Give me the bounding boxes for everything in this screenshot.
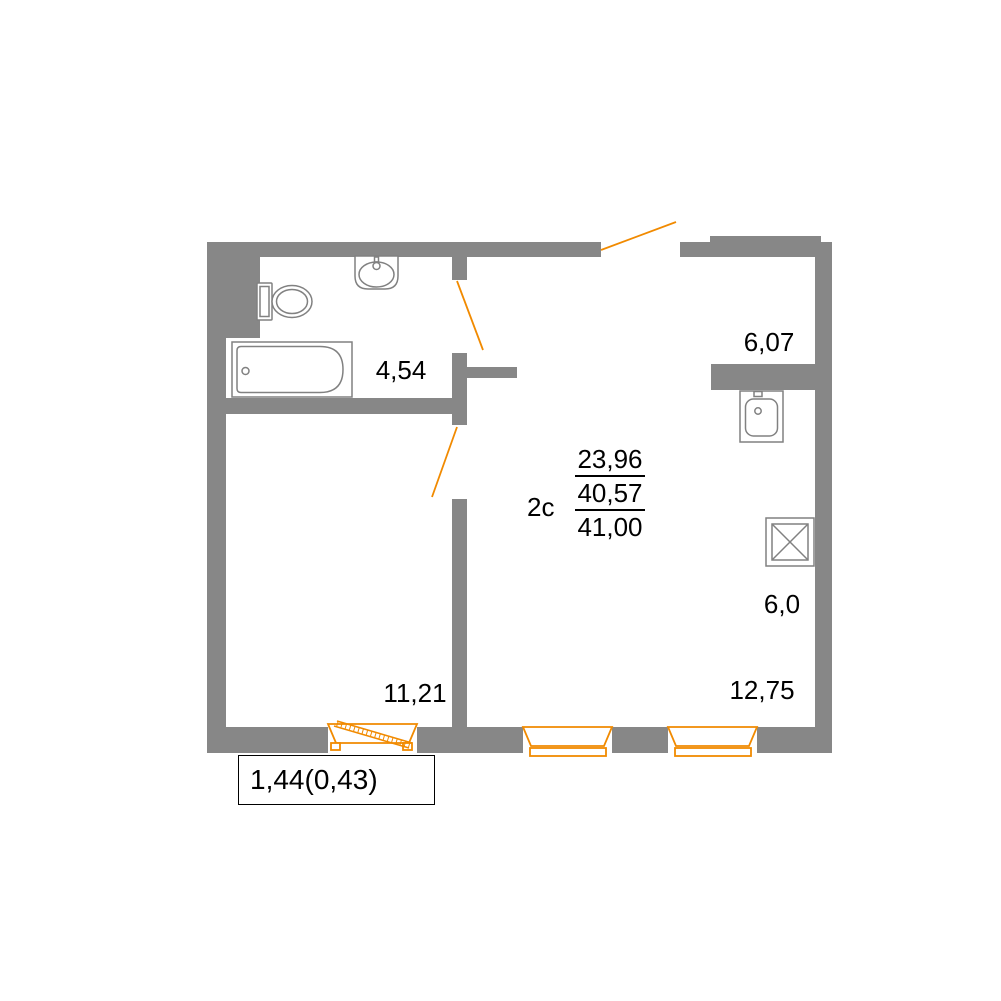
room-door-swing-line bbox=[432, 427, 457, 497]
balcony-area-box: 1,44(0,43) bbox=[238, 755, 435, 805]
kitchen-area-label: 6,0 bbox=[764, 591, 800, 617]
living-area-value: 23,96 bbox=[575, 443, 645, 477]
living-room-area-label: 12,75 bbox=[729, 677, 794, 703]
balcony-area-label: 1,44(0,43) bbox=[250, 764, 378, 796]
entrance-door-swing-line bbox=[601, 222, 676, 250]
kitchen-sink-icon bbox=[740, 391, 783, 442]
bathtub-icon bbox=[232, 342, 352, 397]
window-icon bbox=[668, 727, 757, 756]
bathroom-area-label: 4,54 bbox=[376, 357, 427, 383]
floor-plan: 4,54 6,07 6,0 12,75 11,21 2c 23,96 40,57… bbox=[0, 0, 1001, 1001]
upper-right-area-label: 6,07 bbox=[744, 329, 795, 355]
window-icon bbox=[523, 727, 612, 756]
unit-type-label: 2c bbox=[527, 492, 554, 523]
area-without-balcony-value: 40,57 bbox=[575, 477, 645, 511]
plan-vector-overlay bbox=[0, 0, 1001, 1001]
stove-vent-icon bbox=[766, 518, 814, 566]
room-area-label: 11,21 bbox=[383, 680, 446, 706]
sink-icon bbox=[355, 256, 398, 289]
area-summary: 23,96 40,57 41,00 bbox=[575, 443, 645, 543]
total-area-value: 41,00 bbox=[575, 511, 645, 543]
toilet-icon bbox=[257, 283, 312, 320]
balcony-window-icon bbox=[328, 721, 417, 750]
bathroom-door-swing-line bbox=[457, 281, 483, 350]
